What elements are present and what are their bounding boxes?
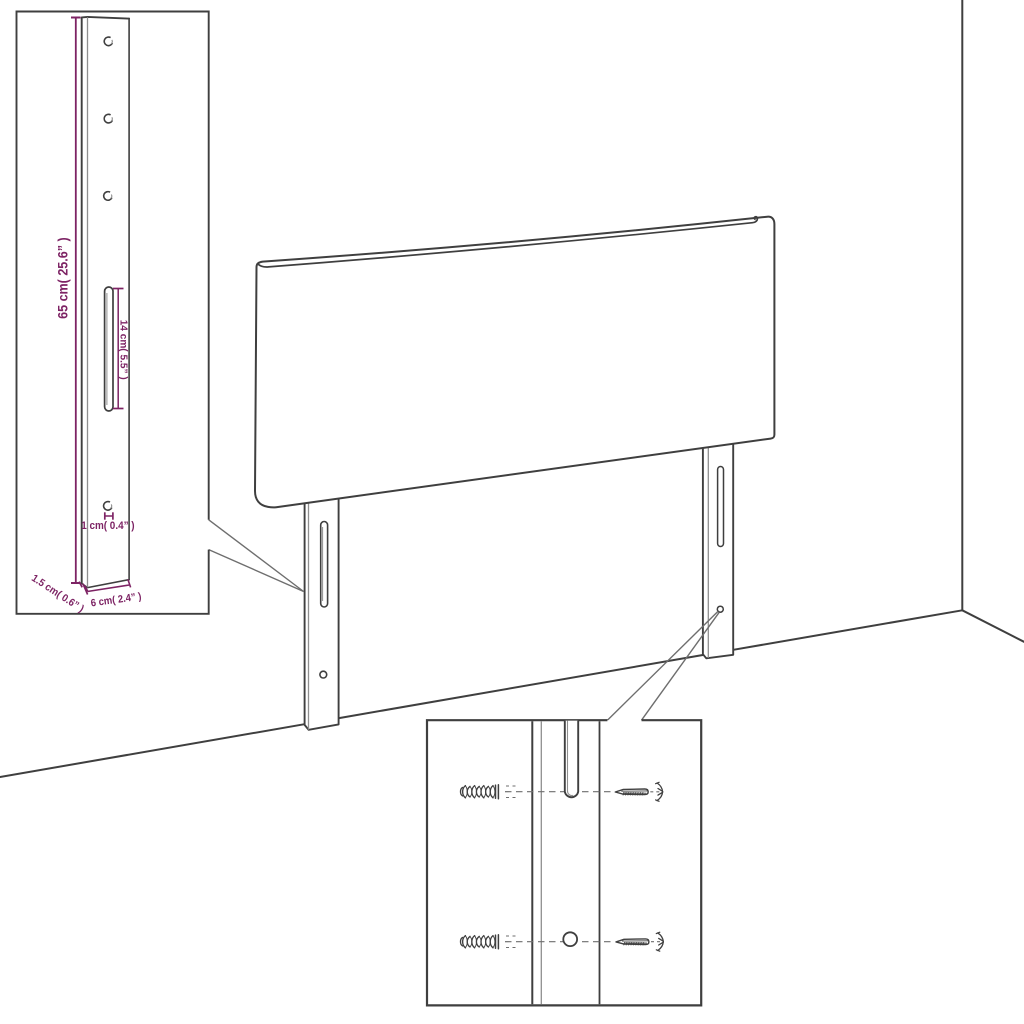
svg-text:1 cm( 0.4” ): 1 cm( 0.4” ) (81, 520, 134, 532)
svg-text:14 cm( 5.5” ): 14 cm( 5.5” ) (118, 320, 129, 380)
svg-text:65 cm( 25.6” ): 65 cm( 25.6” ) (54, 237, 70, 319)
